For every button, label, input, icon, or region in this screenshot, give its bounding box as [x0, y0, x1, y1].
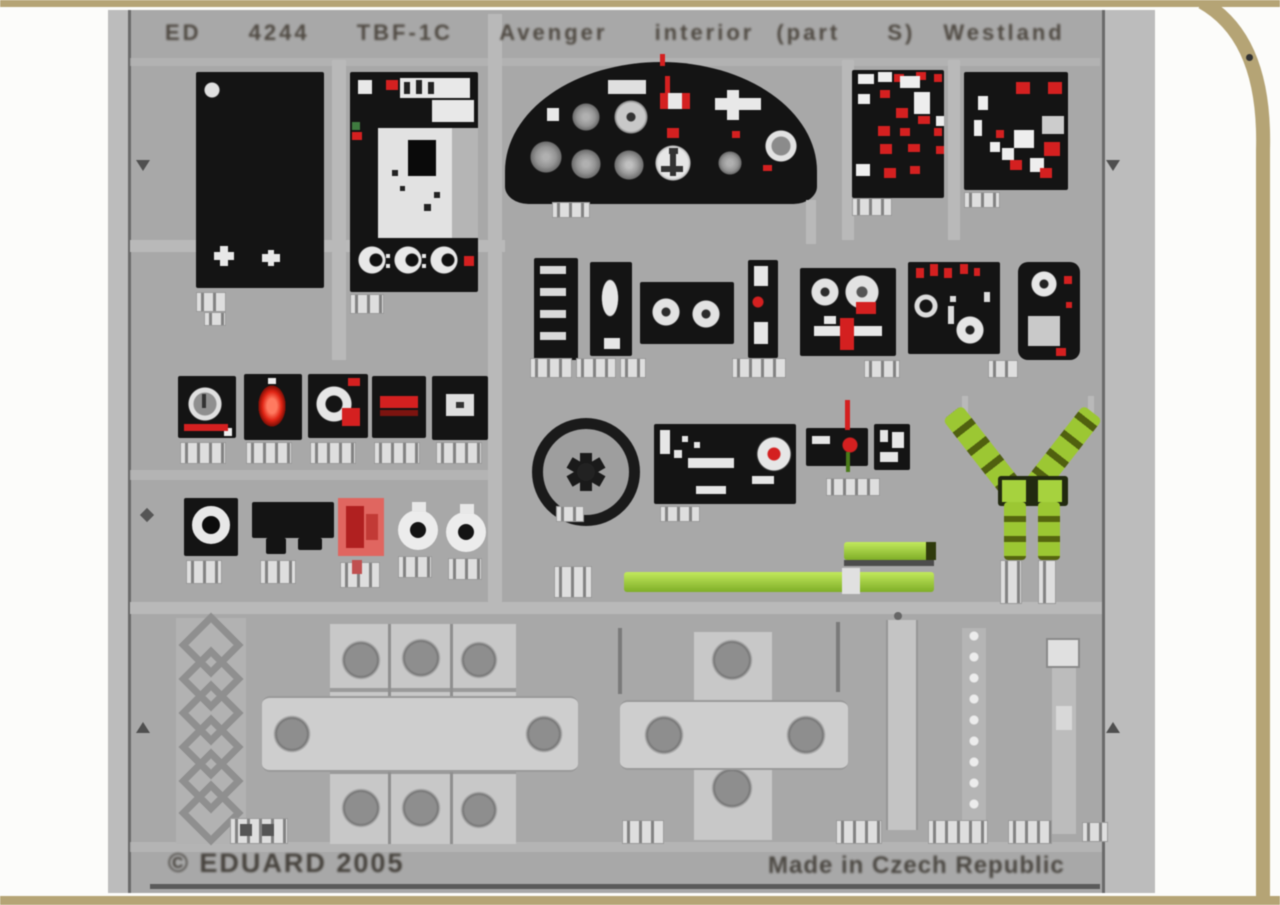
part-number-tab: [186, 560, 222, 584]
dot: [1056, 706, 1072, 730]
caption-code: ED 4244 TBF-1C Avenger interior: [165, 20, 754, 45]
part-number-tab: [826, 478, 880, 496]
made-in-text: Made in Czech Republic: [768, 852, 1065, 880]
fuse-panel: [908, 262, 1000, 354]
part-number-tab: [260, 560, 296, 584]
part-number-tab: [204, 312, 226, 326]
registration-mark: [136, 160, 150, 171]
side-console-panel: [196, 72, 324, 288]
page-border-top: [0, 0, 1280, 7]
dot: [1002, 480, 1026, 502]
fret-edge-right: [1102, 10, 1155, 893]
auxiliary-strip-panel: [748, 260, 778, 358]
part-number-tab: [180, 442, 226, 464]
dot: [844, 560, 934, 566]
dot: [926, 542, 936, 560]
dot: [266, 538, 286, 554]
dot: [412, 502, 426, 512]
control-wheel: [532, 418, 640, 526]
dot: [894, 612, 902, 620]
part-number-tab: [964, 192, 1000, 208]
bezel-ring: [192, 506, 230, 544]
part-number-tab: [374, 442, 420, 464]
part-number-tab: [864, 360, 900, 378]
dot: [845, 400, 850, 430]
fret-edge-left: [108, 10, 131, 893]
gauge-square: [178, 376, 236, 438]
small-bracket: [874, 424, 910, 470]
placard-square: [372, 376, 426, 438]
lap-belt-strip: [844, 542, 934, 560]
caption-part: (part S): [776, 20, 915, 45]
part-number-tab: [928, 820, 988, 844]
part-number-tab: [246, 442, 292, 464]
dot: [1038, 480, 1062, 502]
caption-brand: Westland: [943, 20, 1064, 45]
page-border-bottom: [0, 896, 1280, 905]
dot: [1246, 54, 1253, 61]
part-number-tab: [1008, 820, 1052, 844]
part-number-tab: [1000, 560, 1022, 604]
part-number-tab: [1038, 560, 1056, 604]
seat-harness-strap: [1038, 502, 1060, 560]
dot: [660, 54, 665, 66]
radio-panel: [350, 72, 478, 292]
part-number-tab: [852, 198, 892, 216]
part-number-tab: [556, 506, 584, 522]
dot: [262, 824, 274, 836]
dot: [846, 452, 850, 472]
part-number-tab: [398, 556, 432, 578]
seat-harness-strap: [1004, 502, 1026, 560]
slide-rail-strip: [1052, 644, 1076, 834]
photo-caption: ED 4244 TBF-1C Avenger interior(part S)W…: [165, 20, 1155, 46]
trim-panel: [800, 268, 896, 356]
louvre-panel: [534, 258, 578, 360]
placard-red: [338, 498, 384, 556]
part-number-tab: [1082, 822, 1108, 842]
rail-cap: [1046, 638, 1080, 668]
part-number-tab: [350, 294, 384, 314]
stiffener-strip: [886, 620, 918, 830]
belt-buckle: [842, 568, 860, 594]
page-border-right: [1150, 0, 1280, 905]
perforated-strip: [962, 628, 986, 832]
lever-quadrant: [590, 262, 632, 356]
part-number-tab: [836, 820, 882, 844]
dot: [298, 538, 322, 550]
dot: [352, 560, 362, 574]
part-number-tab: [576, 358, 616, 378]
part-number-tab: [196, 292, 226, 312]
part-number-tab: [620, 358, 646, 378]
part-number-tab: [230, 818, 288, 844]
product-photo: ED 4244 TBF-1C Avenger interior(part S)W…: [0, 0, 1280, 905]
dot: [458, 524, 474, 540]
part-number-tab: [732, 358, 786, 378]
dot: [460, 504, 474, 514]
part-number-tab: [622, 820, 664, 844]
copyright-text: © EDUARD 2005: [168, 848, 404, 879]
part-number-tab: [310, 442, 356, 464]
dual-gauge-panel: [640, 282, 734, 344]
structural-frame-right-band: [620, 700, 848, 770]
switch-panel-left: [852, 70, 944, 198]
dot: [240, 824, 252, 836]
lap-belt-strip: [624, 572, 934, 592]
registration-mark: [136, 722, 150, 733]
dot: [410, 522, 426, 538]
part-number-tab: [988, 360, 1018, 378]
part-number-tab: [660, 506, 700, 522]
part-number-tab: [448, 558, 482, 580]
visor-bracket: [252, 502, 334, 538]
electrical-panel: [654, 424, 796, 504]
registration-mark: [1106, 160, 1120, 171]
indicator-square: [308, 374, 368, 438]
structural-frame-left-band: [262, 696, 578, 772]
part-number-tab: [530, 358, 572, 378]
small-switch-box: [806, 428, 868, 466]
warning-lamp-square: [244, 374, 302, 440]
part-number-tab: [554, 566, 592, 598]
part-number-tab: [436, 442, 482, 464]
part-number-tab: [552, 202, 590, 218]
oxygen-panel: [1018, 262, 1080, 360]
data-plate-square: [432, 376, 488, 440]
switch-panel-right: [964, 72, 1068, 190]
registration-mark: [1106, 722, 1120, 733]
